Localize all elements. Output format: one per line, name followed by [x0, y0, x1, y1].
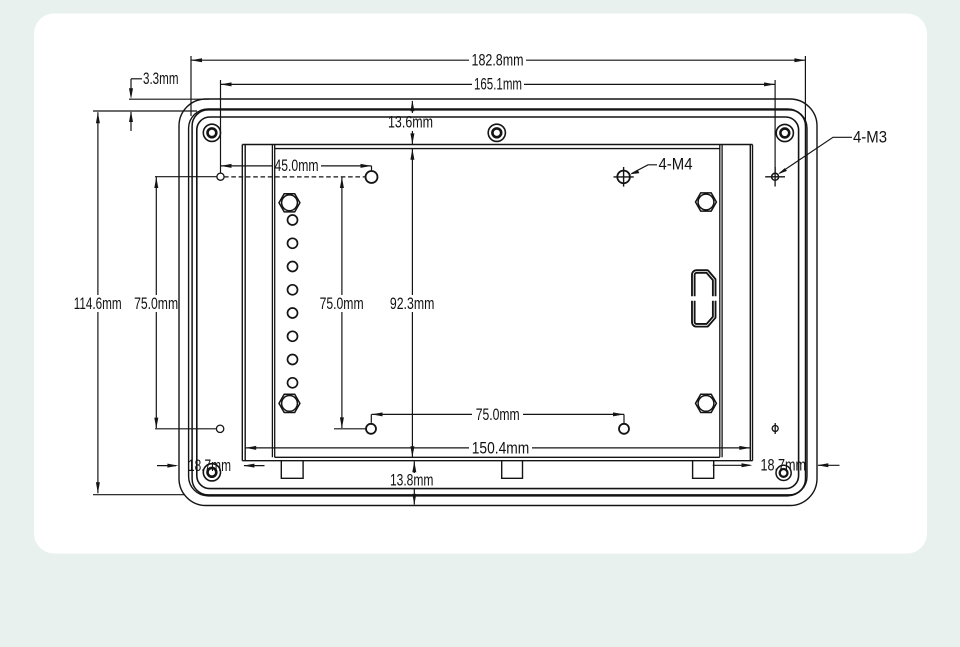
svg-text:75.0mm: 75.0mm [134, 295, 178, 313]
svg-text:165.1mm: 165.1mm [474, 76, 522, 94]
svg-text:150.4mm: 150.4mm [472, 439, 530, 457]
svg-text:75.0mm: 75.0mm [476, 406, 520, 424]
svg-text:18.7mm: 18.7mm [760, 457, 806, 475]
svg-text:18.7mm: 18.7mm [188, 457, 231, 475]
svg-text:75.0mm: 75.0mm [320, 295, 364, 313]
svg-text:13.6mm: 13.6mm [388, 114, 433, 132]
svg-text:114.6mm: 114.6mm [74, 295, 122, 313]
svg-text:92.3mm: 92.3mm [390, 295, 435, 313]
svg-text:3.3mm: 3.3mm [143, 70, 179, 88]
svg-text:182.8mm: 182.8mm [472, 52, 524, 70]
svg-text:13.8mm: 13.8mm [390, 472, 434, 490]
svg-text:45.0mm: 45.0mm [275, 157, 319, 175]
svg-text:4-M4: 4-M4 [659, 156, 693, 174]
svg-text:4-M3: 4-M3 [853, 129, 887, 147]
